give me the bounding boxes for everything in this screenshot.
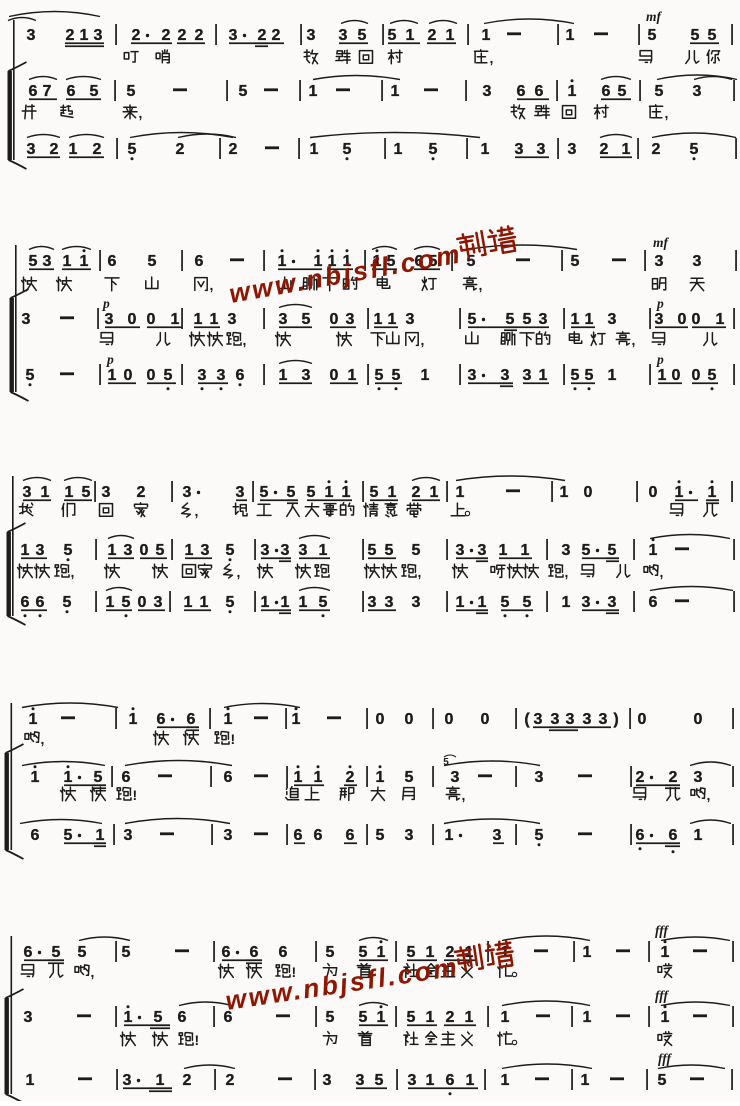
svg-text:3: 3 [406, 311, 415, 328]
svg-text:1: 1 [566, 27, 575, 44]
svg-text:3: 3 [27, 27, 36, 44]
svg-text:2: 2 [195, 27, 204, 44]
svg-text:5: 5 [358, 27, 367, 44]
svg-text:3: 3 [523, 367, 532, 384]
svg-text:5: 5 [368, 542, 377, 559]
svg-text:3: 3 [24, 1009, 33, 1026]
svg-text:1: 1 [309, 83, 318, 100]
svg-text:5: 5 [608, 542, 617, 559]
svg-text:5: 5 [260, 484, 269, 501]
svg-text:6: 6 [222, 944, 231, 961]
svg-text:3: 3 [385, 594, 394, 611]
svg-text:3: 3 [307, 27, 316, 44]
svg-text:3: 3 [183, 484, 192, 501]
svg-text:6: 6 [279, 944, 288, 961]
svg-text:2: 2 [258, 27, 267, 44]
svg-text:3: 3 [43, 253, 52, 270]
svg-text:3: 3 [693, 83, 702, 100]
svg-text:3: 3 [493, 827, 502, 844]
svg-text:1: 1 [581, 1072, 590, 1089]
svg-text:2: 2 [93, 141, 102, 158]
svg-text:1: 1 [41, 484, 50, 501]
svg-text:0: 0 [638, 711, 647, 728]
svg-text:1: 1 [430, 484, 439, 501]
svg-text:0: 0 [330, 367, 339, 384]
svg-text:5: 5 [128, 141, 137, 158]
svg-text:5: 5 [582, 542, 591, 559]
svg-text:3: 3 [124, 827, 133, 844]
svg-text:5: 5 [63, 594, 72, 611]
svg-text:6: 6 [178, 1009, 187, 1026]
svg-text:1: 1 [456, 594, 465, 611]
svg-text:1: 1 [171, 311, 180, 328]
svg-text:1: 1 [421, 367, 430, 384]
svg-text:3: 3 [198, 367, 207, 384]
svg-text:6: 6 [294, 827, 303, 844]
svg-text:1: 1 [388, 484, 397, 501]
svg-text:1: 1 [716, 311, 725, 328]
svg-text:1: 1 [466, 1072, 475, 1089]
svg-text:5: 5 [429, 141, 438, 158]
svg-text:1: 1 [568, 83, 577, 100]
svg-text:5: 5 [64, 542, 73, 559]
svg-text:5: 5 [154, 1009, 163, 1026]
svg-text:5: 5 [571, 367, 580, 384]
svg-text:6: 6 [446, 1072, 455, 1089]
svg-text:,: , [462, 787, 466, 803]
svg-text:1: 1 [501, 1072, 510, 1089]
svg-text:,: , [41, 731, 45, 747]
svg-text:1: 1 [394, 141, 403, 158]
svg-text:5: 5 [535, 827, 544, 844]
svg-text:1: 1 [325, 484, 334, 501]
svg-text:5: 5 [523, 594, 532, 611]
svg-text:1: 1 [279, 367, 288, 384]
svg-text:1: 1 [200, 594, 209, 611]
svg-text:1: 1 [210, 311, 219, 328]
svg-text:3: 3 [562, 542, 571, 559]
svg-text:1: 1 [106, 594, 115, 611]
svg-text:5: 5 [443, 757, 449, 768]
svg-text:5: 5 [26, 367, 35, 384]
svg-text:3: 3 [105, 311, 114, 328]
svg-text:3: 3 [229, 27, 238, 44]
svg-text:5: 5 [370, 484, 379, 501]
svg-text:5: 5 [122, 944, 131, 961]
svg-text:0: 0 [147, 367, 156, 384]
svg-text:2: 2 [669, 769, 678, 786]
svg-text:5: 5 [648, 27, 657, 44]
svg-text:1: 1 [708, 484, 717, 501]
svg-text:3: 3 [534, 711, 543, 728]
svg-text:3: 3 [566, 711, 575, 728]
svg-text:3: 3 [451, 769, 460, 786]
svg-text:6: 6 [224, 769, 233, 786]
svg-text:1: 1 [608, 367, 617, 384]
svg-text:2: 2 [137, 484, 146, 501]
svg-text:1: 1 [571, 311, 580, 328]
svg-text:,: , [660, 564, 664, 580]
svg-text:0: 0 [445, 711, 454, 728]
svg-text:2: 2 [636, 769, 645, 786]
svg-text:5: 5 [375, 1072, 384, 1089]
svg-text:5: 5 [658, 1072, 667, 1089]
svg-text:3: 3 [356, 1072, 365, 1089]
svg-text:2: 2 [652, 141, 661, 158]
svg-text:3: 3 [281, 542, 290, 559]
svg-text:(: ( [524, 711, 530, 728]
svg-text:1: 1 [29, 711, 38, 728]
svg-text:3: 3 [217, 367, 226, 384]
svg-text:3: 3 [694, 769, 703, 786]
svg-text:5: 5 [343, 141, 352, 158]
svg-text:0: 0 [128, 311, 137, 328]
svg-text:3: 3 [551, 711, 560, 728]
svg-text:1: 1 [310, 141, 319, 158]
svg-text:mf: mf [653, 235, 670, 250]
svg-text:3: 3 [537, 141, 546, 158]
svg-text:fff: fff [658, 1051, 673, 1066]
svg-text:3: 3 [655, 253, 664, 270]
svg-text:3: 3 [501, 367, 510, 384]
svg-text:5: 5 [307, 484, 316, 501]
svg-text:3: 3 [27, 141, 36, 158]
svg-text:5: 5 [287, 484, 296, 501]
svg-text:1: 1 [21, 542, 30, 559]
svg-text:2: 2 [178, 27, 187, 44]
svg-text:,: , [490, 50, 494, 66]
svg-text:5: 5 [405, 769, 414, 786]
svg-text:1: 1 [108, 542, 117, 559]
svg-text:5: 5 [164, 367, 173, 384]
svg-text:1: 1 [294, 769, 303, 786]
svg-text:!: ! [195, 1032, 200, 1048]
svg-text:5: 5 [571, 253, 580, 270]
svg-text:1: 1 [445, 827, 454, 844]
svg-text:2: 2 [66, 27, 75, 44]
svg-text:5: 5 [148, 253, 157, 270]
svg-text:2: 2 [446, 1009, 455, 1026]
svg-text:5: 5 [501, 594, 510, 611]
svg-text:1: 1 [583, 1009, 592, 1026]
svg-text:1: 1 [124, 1009, 133, 1026]
svg-text:6: 6 [649, 594, 658, 611]
svg-text:2: 2 [272, 27, 281, 44]
svg-text:0: 0 [694, 711, 703, 728]
svg-text:3: 3 [323, 1072, 332, 1089]
svg-text:5: 5 [407, 1009, 416, 1026]
svg-text:,: , [210, 277, 214, 293]
svg-text:2: 2 [162, 27, 171, 44]
svg-text:0: 0 [140, 542, 149, 559]
svg-text:3: 3 [302, 367, 311, 384]
svg-text:6: 6 [535, 83, 544, 100]
svg-text:6: 6 [31, 827, 40, 844]
svg-text:1: 1 [406, 27, 415, 44]
svg-text:1: 1 [661, 1009, 670, 1026]
svg-text:0: 0 [376, 711, 385, 728]
svg-text:2: 2 [50, 141, 59, 158]
svg-text:1: 1 [481, 141, 490, 158]
svg-text:6: 6 [314, 827, 323, 844]
svg-text:2: 2 [132, 27, 141, 44]
svg-text:1: 1 [585, 311, 594, 328]
svg-text:1: 1 [96, 827, 105, 844]
svg-text:,: , [479, 277, 483, 293]
svg-text:0: 0 [584, 484, 593, 501]
svg-text:1: 1 [391, 83, 400, 100]
svg-text:3: 3 [279, 311, 288, 328]
svg-text:,: , [243, 332, 247, 348]
svg-text:5: 5 [64, 827, 73, 844]
svg-text:1: 1 [80, 253, 89, 270]
svg-text:,: , [237, 564, 241, 580]
svg-text:3: 3 [582, 594, 591, 611]
svg-text:5: 5 [585, 367, 594, 384]
svg-text:5: 5 [226, 594, 235, 611]
svg-text:,: , [565, 564, 569, 580]
svg-text:1: 1 [539, 367, 548, 384]
svg-text:1: 1 [675, 484, 684, 501]
svg-text:5: 5 [375, 367, 384, 384]
svg-text:6: 6 [157, 711, 166, 728]
svg-text:3: 3 [412, 594, 421, 611]
svg-text:5: 5 [392, 367, 401, 384]
svg-text:5: 5 [690, 141, 699, 158]
svg-text:1: 1 [224, 711, 233, 728]
svg-text:3: 3 [299, 542, 308, 559]
svg-text:6: 6 [346, 827, 355, 844]
svg-text:!: ! [133, 787, 138, 803]
svg-text:6: 6 [122, 769, 131, 786]
svg-text:5: 5 [326, 944, 335, 961]
svg-text:1: 1 [64, 769, 73, 786]
svg-text:3: 3 [236, 484, 245, 501]
svg-text:1: 1 [31, 769, 40, 786]
svg-text:3: 3 [608, 311, 617, 328]
svg-text:1: 1 [388, 311, 397, 328]
svg-text:5: 5 [523, 311, 532, 328]
svg-text:1: 1 [456, 484, 465, 501]
svg-text:1: 1 [129, 711, 138, 728]
svg-text:1: 1 [342, 484, 351, 501]
svg-text:0: 0 [692, 367, 701, 384]
svg-text:0: 0 [124, 367, 133, 384]
svg-text:6: 6 [187, 711, 196, 728]
svg-text:3: 3 [655, 311, 664, 328]
svg-text:5: 5 [412, 542, 421, 559]
svg-text:0: 0 [649, 484, 658, 501]
svg-text:1: 1 [194, 311, 203, 328]
svg-text:,: , [665, 105, 669, 121]
svg-text:5: 5 [319, 594, 328, 611]
svg-text:2: 2 [428, 27, 437, 44]
svg-text:1: 1 [278, 253, 287, 270]
svg-text:0: 0 [481, 711, 490, 728]
svg-text:1: 1 [376, 769, 385, 786]
svg-text:3: 3 [224, 827, 233, 844]
svg-text:3: 3 [36, 542, 45, 559]
svg-text:6: 6 [636, 827, 645, 844]
svg-text:5: 5 [122, 594, 131, 611]
svg-text:1: 1 [319, 542, 328, 559]
svg-text:5: 5 [359, 944, 368, 961]
svg-text:6: 6 [108, 253, 117, 270]
svg-text:fff: fff [655, 988, 670, 1003]
svg-text:1: 1 [26, 1072, 35, 1089]
svg-text:3: 3 [201, 542, 210, 559]
svg-text:3: 3 [535, 769, 544, 786]
svg-text:1: 1 [661, 944, 670, 961]
svg-text:3: 3 [124, 542, 133, 559]
svg-text:0: 0 [147, 311, 156, 328]
svg-text:1: 1 [281, 594, 290, 611]
svg-text:1: 1 [465, 1009, 474, 1026]
svg-text:2: 2 [412, 484, 421, 501]
svg-text:3: 3 [154, 594, 163, 611]
svg-text:3: 3 [228, 311, 237, 328]
svg-text:3: 3 [583, 711, 592, 728]
svg-text:3: 3 [456, 542, 465, 559]
svg-text:6: 6 [236, 367, 245, 384]
svg-text:5: 5 [52, 944, 61, 961]
svg-text:,: , [195, 503, 199, 519]
svg-text:1: 1 [108, 367, 117, 384]
svg-text:3: 3 [408, 1072, 417, 1089]
svg-text:1: 1 [185, 542, 194, 559]
svg-text:1: 1 [65, 484, 74, 501]
svg-text:,: , [91, 964, 95, 980]
svg-text:5: 5 [90, 83, 99, 100]
svg-text:3: 3 [468, 367, 477, 384]
svg-text:p: p [106, 352, 114, 367]
svg-text:3: 3 [568, 141, 577, 158]
svg-text:2: 2 [226, 1072, 235, 1089]
svg-text:5: 5 [376, 827, 385, 844]
svg-text:3: 3 [339, 27, 348, 44]
svg-text:5: 5 [326, 1009, 335, 1026]
svg-text:p: p [102, 296, 110, 311]
svg-text:2: 2 [183, 1072, 192, 1089]
svg-text:1: 1 [426, 1009, 435, 1026]
svg-text:0: 0 [138, 594, 147, 611]
svg-text:3: 3 [483, 83, 492, 100]
svg-text:6: 6 [29, 83, 38, 100]
svg-text:1: 1 [562, 594, 571, 611]
svg-text:,: , [632, 332, 636, 348]
svg-text:6: 6 [250, 944, 259, 961]
svg-text:,: , [421, 332, 425, 348]
svg-text:1: 1 [482, 27, 491, 44]
svg-text:5: 5 [708, 367, 717, 384]
svg-text:6: 6 [67, 83, 76, 100]
svg-text:,: , [71, 564, 75, 580]
svg-text:5: 5 [691, 27, 700, 44]
svg-text:2: 2 [229, 141, 238, 158]
svg-text:1: 1 [348, 367, 357, 384]
svg-text:5: 5 [468, 311, 477, 328]
svg-text:!: ! [231, 731, 236, 747]
svg-text:5: 5 [239, 83, 248, 100]
svg-text:6: 6 [669, 827, 678, 844]
svg-text:p: p [656, 296, 664, 311]
svg-text:5: 5 [655, 83, 664, 100]
svg-text:2: 2 [346, 769, 355, 786]
svg-text:1: 1 [63, 253, 72, 270]
svg-text:3: 3 [123, 1072, 132, 1089]
svg-text:,: , [139, 105, 143, 121]
svg-text:mf: mf [646, 9, 663, 24]
svg-text:3: 3 [515, 141, 524, 158]
svg-text:2: 2 [176, 141, 185, 158]
svg-text:1: 1 [184, 594, 193, 611]
svg-text:,: , [418, 564, 422, 580]
svg-text:3: 3 [599, 711, 608, 728]
svg-text:p: p [656, 352, 664, 367]
svg-text:6: 6 [24, 944, 33, 961]
svg-text:5: 5 [618, 83, 627, 100]
svg-text:0: 0 [678, 311, 687, 328]
svg-text:1: 1 [521, 542, 530, 559]
svg-text:6: 6 [36, 594, 45, 611]
svg-text:3: 3 [94, 27, 103, 44]
svg-text:1: 1 [374, 311, 383, 328]
svg-text:0: 0 [672, 367, 681, 384]
svg-text:5: 5 [156, 542, 165, 559]
svg-text:5: 5 [127, 83, 136, 100]
svg-text:,: , [707, 787, 711, 803]
svg-text:5: 5 [302, 311, 311, 328]
svg-text:5: 5 [29, 253, 38, 270]
svg-text:1: 1 [261, 594, 270, 611]
svg-text:): ) [613, 711, 618, 728]
svg-text:5: 5 [226, 542, 235, 559]
svg-text:3: 3 [539, 311, 548, 328]
svg-text:3: 3 [478, 542, 487, 559]
svg-text:3: 3 [346, 311, 355, 328]
svg-text:1: 1 [377, 944, 386, 961]
svg-text:0: 0 [330, 311, 339, 328]
svg-text:3: 3 [22, 311, 31, 328]
svg-text:1: 1 [299, 594, 308, 611]
svg-text:1: 1 [583, 944, 592, 961]
svg-text:6: 6 [195, 253, 204, 270]
svg-text:1: 1 [658, 367, 667, 384]
svg-text:3: 3 [405, 827, 414, 844]
svg-text:3: 3 [368, 594, 377, 611]
svg-text:1: 1 [69, 141, 78, 158]
svg-text:1: 1 [292, 711, 301, 728]
svg-text:3: 3 [608, 594, 617, 611]
svg-text:0: 0 [405, 711, 414, 728]
svg-text:1: 1 [499, 542, 508, 559]
svg-text:6: 6 [602, 83, 611, 100]
svg-text:1: 1 [622, 141, 631, 158]
svg-text:1: 1 [377, 1009, 386, 1026]
svg-text:1: 1 [478, 594, 487, 611]
svg-text:3: 3 [261, 542, 270, 559]
svg-text:5: 5 [94, 769, 103, 786]
svg-text:1: 1 [694, 827, 703, 844]
svg-text:1: 1 [501, 1009, 510, 1026]
svg-text:5: 5 [82, 484, 91, 501]
svg-text:0: 0 [692, 311, 701, 328]
svg-text:1: 1 [80, 27, 89, 44]
svg-text:6: 6 [517, 83, 526, 100]
svg-text:1: 1 [560, 484, 569, 501]
svg-text:2: 2 [600, 141, 609, 158]
svg-text:3: 3 [23, 484, 32, 501]
